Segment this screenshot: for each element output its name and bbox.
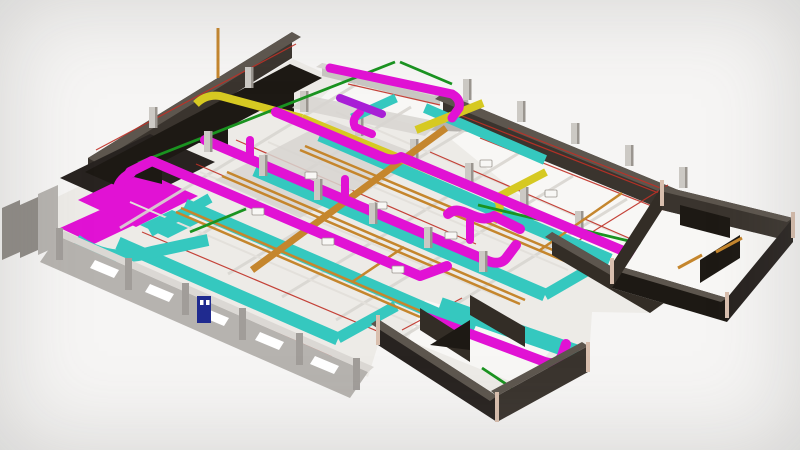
- electrical-panel: [197, 296, 211, 323]
- bim-3d-viewport: [0, 0, 800, 450]
